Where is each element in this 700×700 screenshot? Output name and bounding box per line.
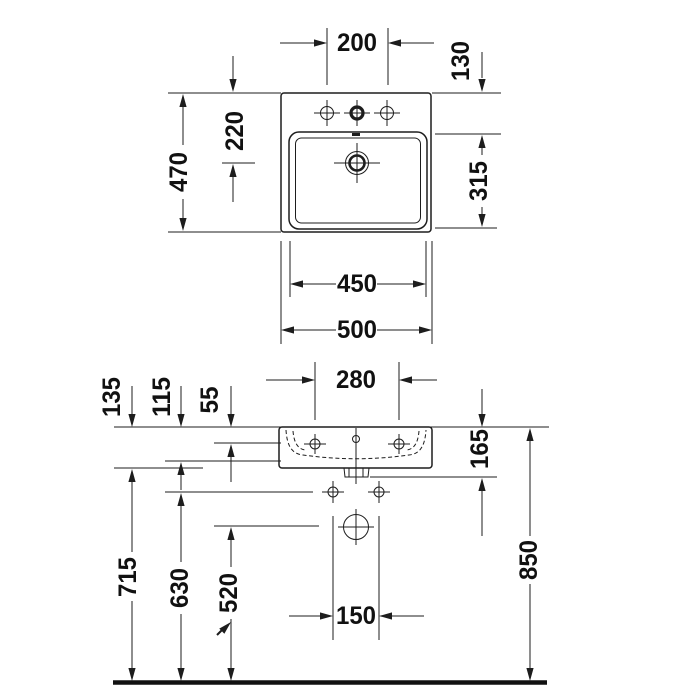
dim-850: 850 bbox=[515, 428, 543, 681]
dim-520-label: 520 bbox=[215, 573, 243, 613]
dim-115: 115 bbox=[148, 377, 185, 490]
dim-115-label: 115 bbox=[148, 377, 176, 417]
washbasin-dimension-drawing: 200 130 220 470 315 450 bbox=[0, 0, 700, 700]
dim-150-label: 150 bbox=[336, 602, 376, 630]
dim-715: 715 bbox=[114, 469, 142, 681]
plan-tap-holes bbox=[314, 100, 400, 126]
dim-280-label: 280 bbox=[336, 366, 376, 394]
basin-hidden-contour-right bbox=[407, 431, 419, 450]
dim-470: 470 bbox=[165, 94, 193, 231]
plan-view: 200 130 220 470 315 450 bbox=[165, 28, 501, 344]
dim-130-label: 130 bbox=[447, 41, 475, 81]
dim-220: 220 bbox=[221, 56, 249, 202]
front-view: 280 135 115 55 165 715 bbox=[98, 362, 549, 683]
dim-470-label: 470 bbox=[165, 152, 193, 192]
dim-500: 500 bbox=[281, 316, 432, 344]
dim-135: 135 bbox=[98, 377, 136, 427]
technical-drawing-page: 200 130 220 470 315 450 bbox=[0, 0, 700, 700]
dim-315-label: 315 bbox=[465, 161, 493, 201]
front-body-outline bbox=[279, 427, 432, 484]
front-fixing-holes-upper bbox=[304, 434, 410, 454]
dim-500-label: 500 bbox=[337, 316, 377, 344]
dim-200: 200 bbox=[280, 29, 434, 57]
dim-130: 130 bbox=[447, 41, 486, 92]
dim-220-label: 220 bbox=[221, 111, 249, 151]
dim-55-label: 55 bbox=[196, 386, 224, 413]
dim-630: 630 bbox=[166, 493, 194, 681]
basin-hidden-contour-left bbox=[293, 431, 305, 450]
plan-drain bbox=[334, 143, 380, 183]
dim-135-label: 135 bbox=[98, 377, 126, 417]
dim-450: 450 bbox=[290, 270, 426, 298]
dim-165-label: 165 bbox=[466, 429, 494, 469]
dim-150: 150 bbox=[289, 602, 424, 630]
basin-inner-wall bbox=[296, 138, 421, 223]
dim-450-label: 450 bbox=[337, 270, 377, 298]
dim-200-label: 200 bbox=[337, 29, 377, 57]
dim-315: 315 bbox=[465, 135, 493, 227]
dim-280: 280 bbox=[266, 366, 437, 394]
basin-inner-rim bbox=[289, 132, 427, 229]
dim-715-label: 715 bbox=[114, 557, 142, 597]
dim-630-label: 630 bbox=[166, 568, 194, 608]
dim-850-label: 850 bbox=[515, 540, 543, 580]
front-fixing-holes-lower bbox=[322, 481, 390, 503]
dim-520: 520 bbox=[215, 527, 243, 681]
overflow-mark bbox=[352, 133, 360, 136]
front-drain-outlet bbox=[338, 509, 374, 545]
dim-165: 165 bbox=[466, 389, 494, 536]
